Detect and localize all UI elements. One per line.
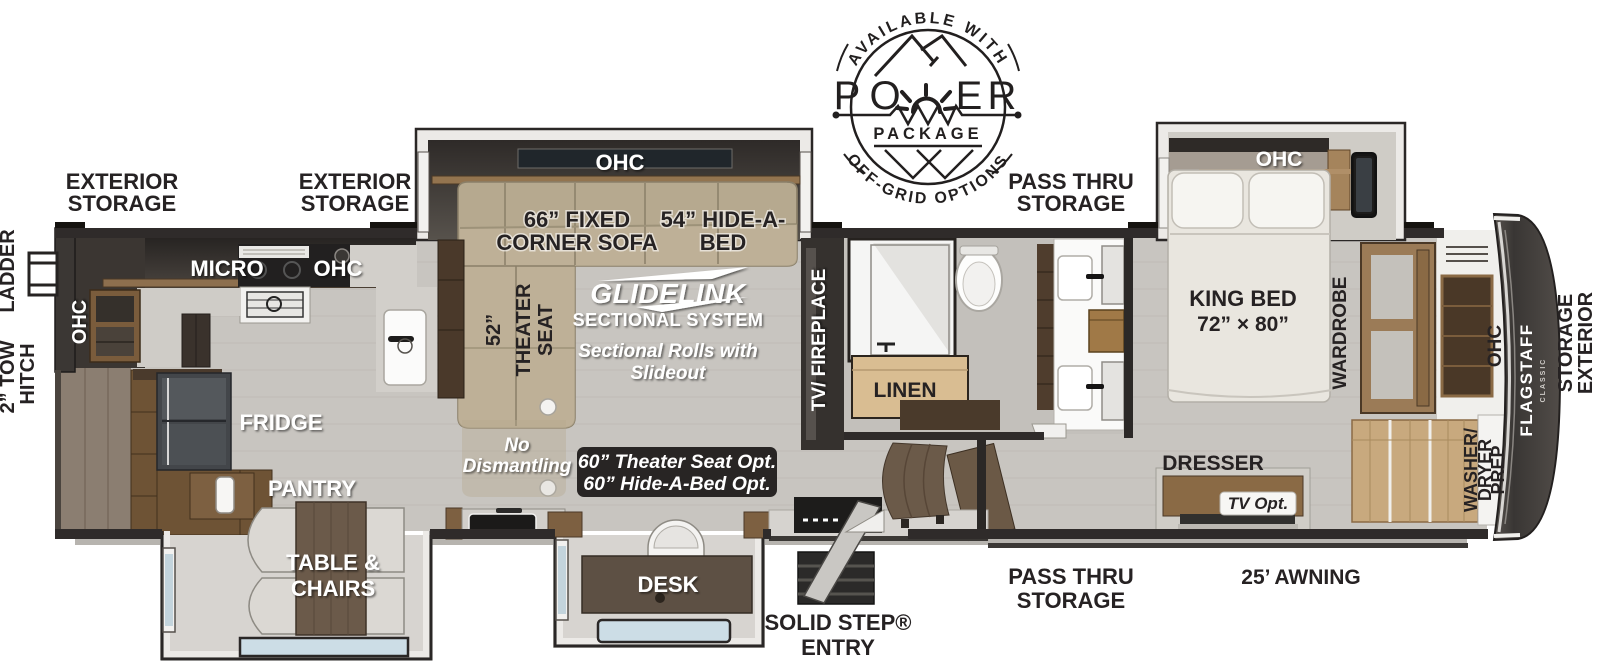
svg-text:ENTRY: ENTRY [801,635,875,660]
svg-text:PASS THRU: PASS THRU [1008,564,1134,589]
svg-text:OHC: OHC [596,150,645,175]
svg-text:No: No [504,435,529,456]
svg-text:CORNER SOFA: CORNER SOFA [496,230,657,255]
svg-text:PACKAGE: PACKAGE [873,125,982,143]
svg-text:52”: 52” [483,314,505,346]
svg-text:THEATER: THEATER [513,283,535,377]
svg-text:Slideout: Slideout [631,363,707,384]
svg-text:FLAGSTAFF: FLAGSTAFF [1517,323,1536,436]
svg-text:Dismantling: Dismantling [463,456,572,477]
svg-text:WARDROBE: WARDROBE [1330,277,1351,390]
svg-text:FRIDGE: FRIDGE [239,410,322,435]
svg-text:EXTERIOR: EXTERIOR [1575,291,1597,394]
svg-text:72” × 80”: 72” × 80” [1197,313,1289,336]
svg-text:Sectional Rolls with: Sectional Rolls with [578,341,757,362]
svg-text:25’ AWNING: 25’ AWNING [1241,566,1360,589]
svg-text:OHC: OHC [69,300,91,344]
svg-text:STORAGE: STORAGE [301,191,409,216]
svg-text:R: R [988,74,1017,118]
svg-text:SECTIONAL SYSTEM: SECTIONAL SYSTEM [573,310,764,330]
svg-text:PANTRY: PANTRY [268,476,356,501]
svg-text:OHC: OHC [1485,325,1506,368]
svg-text:AVAILABLE WITH: AVAILABLE WITH [845,10,1011,69]
svg-text:LINEN: LINEN [874,379,937,402]
svg-text:TV Opt.: TV Opt. [1228,494,1288,513]
svg-text:TABLE &: TABLE & [286,550,380,575]
svg-text:CLASSIC: CLASSIC [1540,358,1547,403]
svg-text:66” FIXED: 66” FIXED [524,207,630,232]
svg-text:OHC: OHC [314,256,363,281]
svg-text:STORAGE: STORAGE [1017,191,1125,216]
svg-text:O: O [869,74,900,118]
svg-text:STORAGE: STORAGE [68,191,176,216]
svg-text:MICRO: MICRO [190,256,263,281]
svg-text:PREP: PREP [1488,445,1508,494]
svg-text:60” Theater Seat Opt.: 60” Theater Seat Opt. [578,451,776,473]
svg-text:LADDER: LADDER [0,229,19,313]
svg-text:SOLID STEP®: SOLID STEP® [764,610,911,635]
svg-text:CHAIRS: CHAIRS [291,576,375,601]
svg-text:54” HIDE-A-: 54” HIDE-A- [661,207,786,232]
svg-text:BED: BED [700,230,746,255]
svg-text:DRESSER: DRESSER [1162,452,1264,475]
svg-text:STORAGE: STORAGE [1017,588,1125,613]
svg-text:TV/ FIREPLACE: TV/ FIREPLACE [809,269,830,412]
svg-text:OHC: OHC [1256,148,1303,171]
svg-text:KING BED: KING BED [1189,286,1297,311]
svg-text:P: P [834,74,861,118]
svg-text:SEAT: SEAT [535,304,557,356]
svg-text:60” Hide-A-Bed Opt.: 60” Hide-A-Bed Opt. [583,473,770,495]
svg-text:STORAGE: STORAGE [1555,294,1577,393]
svg-text:HITCH: HITCH [17,343,39,404]
svg-text:DESK: DESK [637,572,698,597]
